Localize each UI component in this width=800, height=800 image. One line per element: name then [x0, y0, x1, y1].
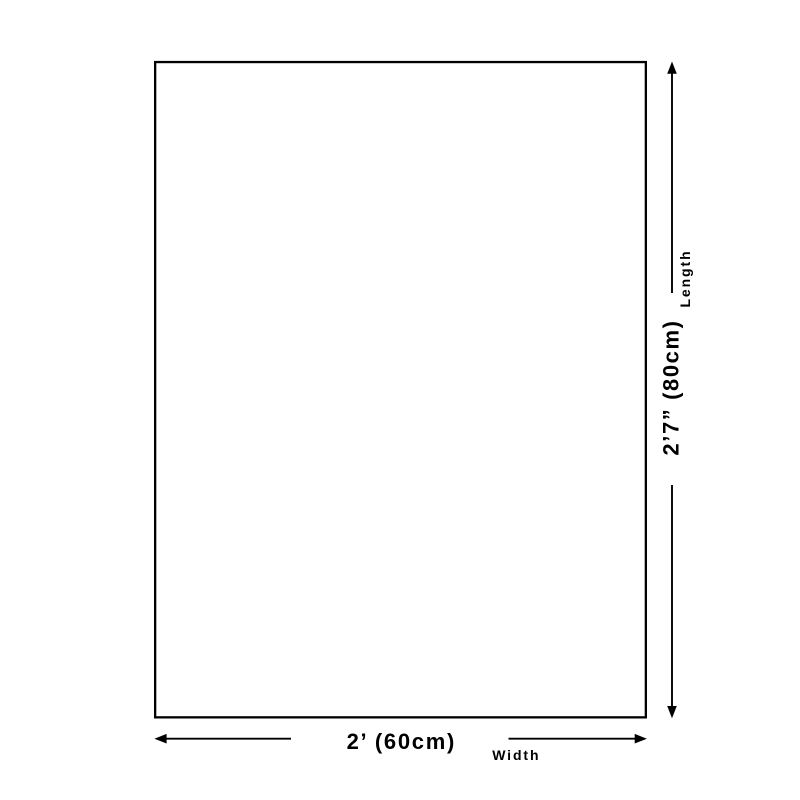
- svg-text:Length: Length: [677, 249, 693, 307]
- svg-text:2’ (60cm): 2’ (60cm): [347, 729, 456, 754]
- svg-text:2’7” (80cm): 2’7” (80cm): [659, 319, 684, 455]
- svg-text:Width: Width: [492, 747, 540, 763]
